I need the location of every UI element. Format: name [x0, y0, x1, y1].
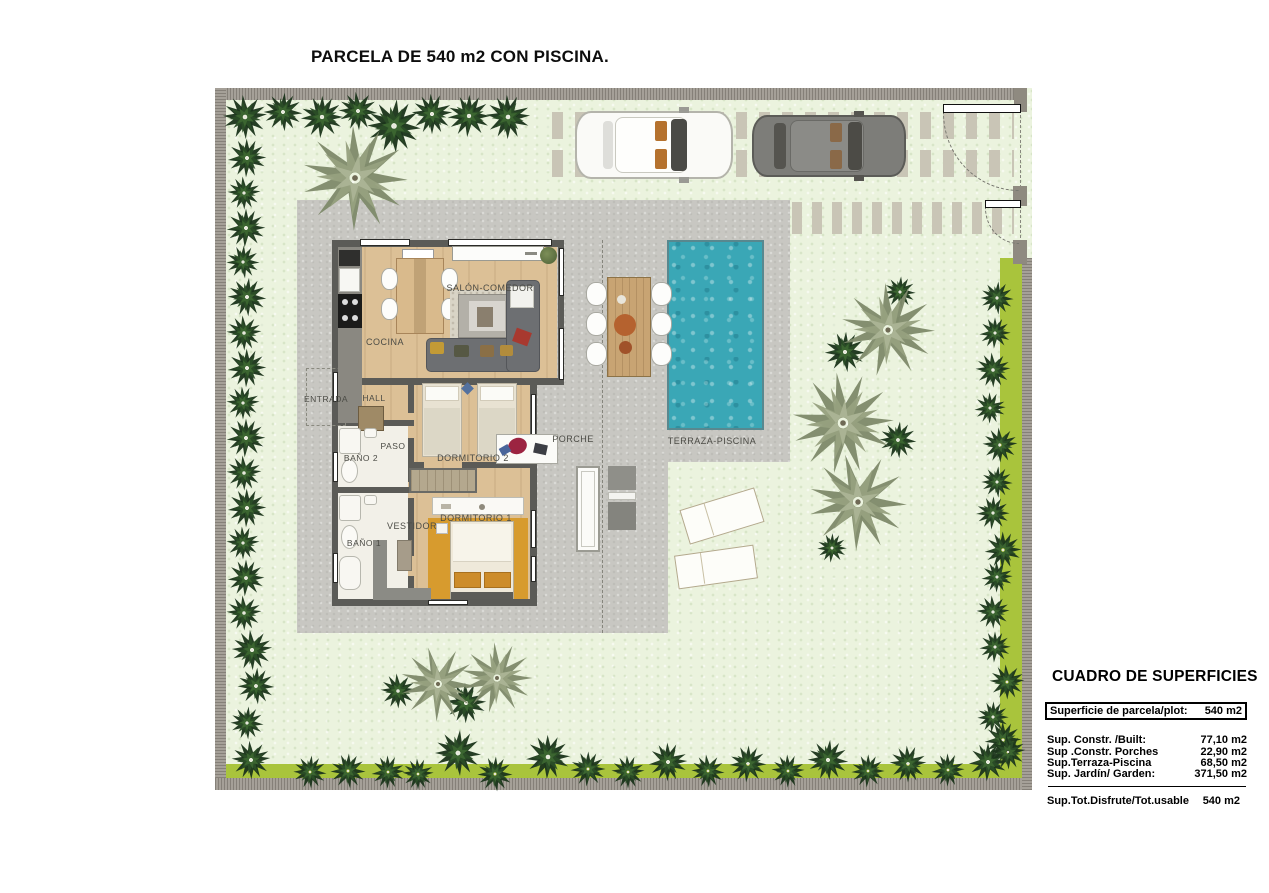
car-mirror [854, 175, 864, 181]
vestidor-bench [397, 540, 412, 571]
perimeter-wall-top [215, 88, 1027, 100]
cushion-olive [454, 345, 469, 357]
porch-bench [576, 466, 600, 552]
surface-table-row: Sup. Constr. /Built: 77,10 m2 [1047, 735, 1247, 747]
cushion-mustard [500, 345, 513, 356]
hedge-right [1000, 258, 1022, 778]
outdoor-chair [651, 342, 672, 366]
pillow-orange [454, 572, 481, 588]
window-bath1 [333, 553, 338, 583]
car-mirror [679, 107, 689, 113]
perimeter-wall-left [215, 88, 226, 790]
window-south [428, 600, 468, 605]
perimeter-wall-right [1022, 258, 1032, 790]
total-row-label: Sup.Tot.Disfrute/Tot.usable [1047, 796, 1189, 808]
swimming-pool [667, 240, 764, 430]
surface-table-plot-row: Superficie de parcela/plot: 540 m2 [1045, 702, 1247, 720]
kitchen-appliance [339, 250, 360, 266]
room-label-hall: HALL [349, 393, 399, 403]
sink [364, 428, 377, 438]
kitchen-sink [339, 268, 360, 292]
window-living-east [559, 328, 564, 380]
page-title: PARCELA DE 540 m2 CON PISCINA. [311, 47, 609, 67]
room-label-cocina: COCINA [345, 337, 425, 347]
tv-sideboard [452, 246, 544, 261]
car-gray [752, 115, 906, 177]
window-dorm2 [531, 394, 536, 436]
dining-chair [381, 268, 398, 290]
wall-bath2-bath1 [332, 487, 414, 493]
plot-row-label: Superficie de parcela/plot: [1050, 705, 1188, 717]
sink [364, 495, 377, 505]
pedestrian-gate-leaf [985, 200, 1021, 208]
car-white [575, 111, 733, 179]
room-label-porche: PORCHE [538, 434, 608, 444]
outdoor-chair [586, 282, 607, 306]
row-label: Sup. Jardín/ Garden: [1047, 769, 1155, 781]
surface-table-row: Sup. Jardín/ Garden: 371,50 m2 [1047, 769, 1247, 781]
wall-corridor [408, 385, 414, 413]
window-living-east [559, 248, 564, 296]
porch-side-table [608, 502, 636, 530]
vestidor-closet [373, 588, 431, 600]
room-label-paso: PASO [363, 441, 423, 451]
plate [617, 295, 626, 304]
walkway-paving [792, 202, 1014, 234]
room-label-dormitorio1: DORMITORIO 1 [416, 513, 536, 523]
cushion-brown [480, 345, 494, 357]
room-label-entrada: ENTRADA [296, 394, 356, 404]
vehicle-gate-leaf [943, 104, 1021, 113]
porch-tray [608, 492, 636, 500]
room-label-dormitorio2: DORMITORIO 2 [413, 453, 533, 463]
perimeter-wall-bottom [215, 778, 1032, 790]
car-mirror [854, 111, 864, 117]
cushion-yellow [430, 342, 444, 354]
surface-table-title: CUADRO DE SUPERFICIES [1052, 668, 1258, 686]
porch-side-table [608, 466, 636, 490]
bowl [614, 314, 636, 336]
plot-row-value: 540 m2 [1205, 705, 1242, 717]
bathtub [339, 556, 361, 590]
bowl [619, 341, 632, 354]
window-kitchen [360, 239, 410, 246]
dining-table [396, 258, 444, 334]
hedge-bottom [226, 764, 1022, 778]
dining-chair [381, 298, 398, 320]
property-line-dashed [1020, 100, 1021, 258]
row-value: 77,10 m2 [1201, 735, 1247, 747]
kitchen-hob [338, 294, 362, 328]
room-label-bano1: BAÑO 1 [334, 538, 394, 548]
outdoor-chair [651, 282, 672, 306]
outdoor-chair [651, 312, 672, 336]
window-dorm1 [531, 556, 536, 582]
total-row-value: 540 m2 [1203, 796, 1240, 808]
car-mirror [679, 177, 689, 183]
surface-table-divider [1048, 786, 1246, 787]
area-label-terraza-piscina: TERRAZA-PISCINA [652, 436, 772, 446]
wardrobe [409, 468, 477, 493]
floor-plan-page: PARCELA DE 540 m2 CON PISCINA. [0, 0, 1269, 893]
outdoor-chair [586, 342, 607, 366]
shower-tray [339, 428, 361, 454]
bed-headboard [451, 592, 513, 599]
row-label: Sup. Constr. /Built: [1047, 735, 1146, 747]
plant-pot [540, 247, 557, 264]
shower-tray [339, 495, 361, 521]
row-value: 371,50 m2 [1194, 769, 1247, 781]
outdoor-chair [586, 312, 607, 336]
double-bed [450, 521, 514, 599]
room-label-bano2: BAÑO 2 [331, 453, 391, 463]
room-label-salon: SALÓN-COMEDOR [430, 283, 550, 293]
window-living [448, 239, 552, 246]
pillow-orange [484, 572, 511, 588]
single-bed [422, 383, 462, 457]
surface-table-total-row: Sup.Tot.Disfrute/Tot.usable 540 m2 [1047, 796, 1240, 808]
